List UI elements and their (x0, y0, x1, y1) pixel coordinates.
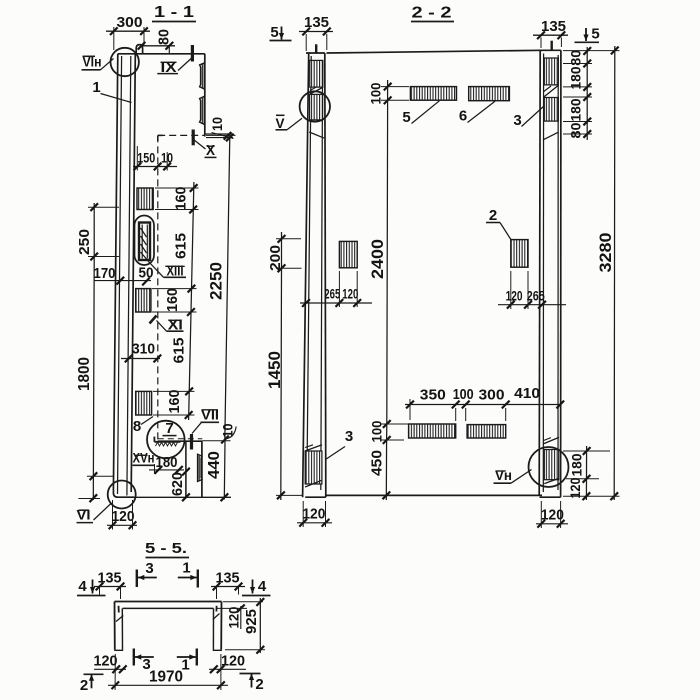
svg-text:160: 160 (174, 187, 190, 211)
svg-text:X: X (206, 143, 215, 159)
svg-text:120: 120 (342, 286, 358, 302)
svg-text:120: 120 (567, 477, 583, 498)
svg-text:4: 4 (258, 578, 267, 595)
svg-text:1: 1 (182, 560, 190, 577)
svg-text:3280: 3280 (597, 233, 615, 273)
svg-text:2: 2 (255, 676, 263, 693)
svg-text:310: 310 (132, 342, 155, 358)
svg-text:2: 2 (80, 677, 88, 694)
svg-text:160: 160 (165, 288, 181, 312)
svg-text:5: 5 (402, 109, 410, 126)
svg-text:50: 50 (139, 266, 154, 282)
svg-text:180: 180 (567, 66, 583, 89)
svg-text:265: 265 (527, 288, 545, 304)
svg-text:450: 450 (368, 450, 385, 476)
svg-text:80: 80 (568, 122, 584, 138)
svg-text:VII: VII (201, 407, 219, 423)
svg-text:250: 250 (76, 229, 93, 255)
svg-text:1 - 1: 1 - 1 (154, 4, 194, 21)
svg-text:180: 180 (567, 98, 583, 121)
svg-text:XVн: XVн (133, 450, 155, 466)
svg-text:100: 100 (368, 82, 384, 104)
svg-text:6: 6 (459, 108, 467, 125)
svg-text:1800: 1800 (76, 357, 93, 391)
svg-text:2400: 2400 (369, 239, 387, 279)
svg-text:160: 160 (167, 390, 183, 414)
svg-text:VI: VI (77, 507, 91, 523)
svg-text:350: 350 (420, 387, 446, 404)
svg-text:300: 300 (479, 387, 505, 404)
svg-text:3: 3 (345, 428, 353, 445)
svg-text:100: 100 (453, 387, 474, 403)
svg-text:2250: 2250 (207, 262, 225, 300)
svg-text:5 - 5.: 5 - 5. (145, 541, 187, 557)
svg-text:440: 440 (206, 451, 223, 479)
svg-text:180: 180 (569, 453, 585, 476)
svg-text:10: 10 (209, 117, 225, 131)
svg-text:7: 7 (165, 420, 173, 437)
svg-text:615: 615 (172, 233, 189, 259)
svg-text:620: 620 (170, 472, 186, 496)
svg-text:1970: 1970 (149, 669, 183, 686)
svg-text:5: 5 (591, 26, 599, 43)
svg-text:410: 410 (514, 385, 540, 402)
svg-text:120: 120 (94, 654, 118, 670)
svg-text:2: 2 (489, 207, 497, 224)
svg-text:300: 300 (117, 14, 143, 31)
svg-text:2 - 2: 2 - 2 (412, 5, 452, 22)
svg-text:8: 8 (133, 418, 141, 435)
svg-text:120: 120 (221, 654, 245, 670)
svg-text:615: 615 (170, 338, 187, 364)
svg-text:1: 1 (92, 79, 100, 96)
svg-text:265: 265 (324, 286, 340, 302)
svg-text:5: 5 (270, 24, 278, 41)
svg-text:V: V (276, 115, 286, 131)
svg-text:Vн: Vн (495, 467, 512, 483)
svg-text:3: 3 (145, 560, 153, 577)
svg-text:3: 3 (513, 112, 521, 129)
svg-text:80: 80 (155, 29, 172, 45)
svg-text:4: 4 (78, 578, 87, 595)
svg-text:925: 925 (244, 609, 260, 634)
svg-text:170: 170 (94, 266, 116, 282)
